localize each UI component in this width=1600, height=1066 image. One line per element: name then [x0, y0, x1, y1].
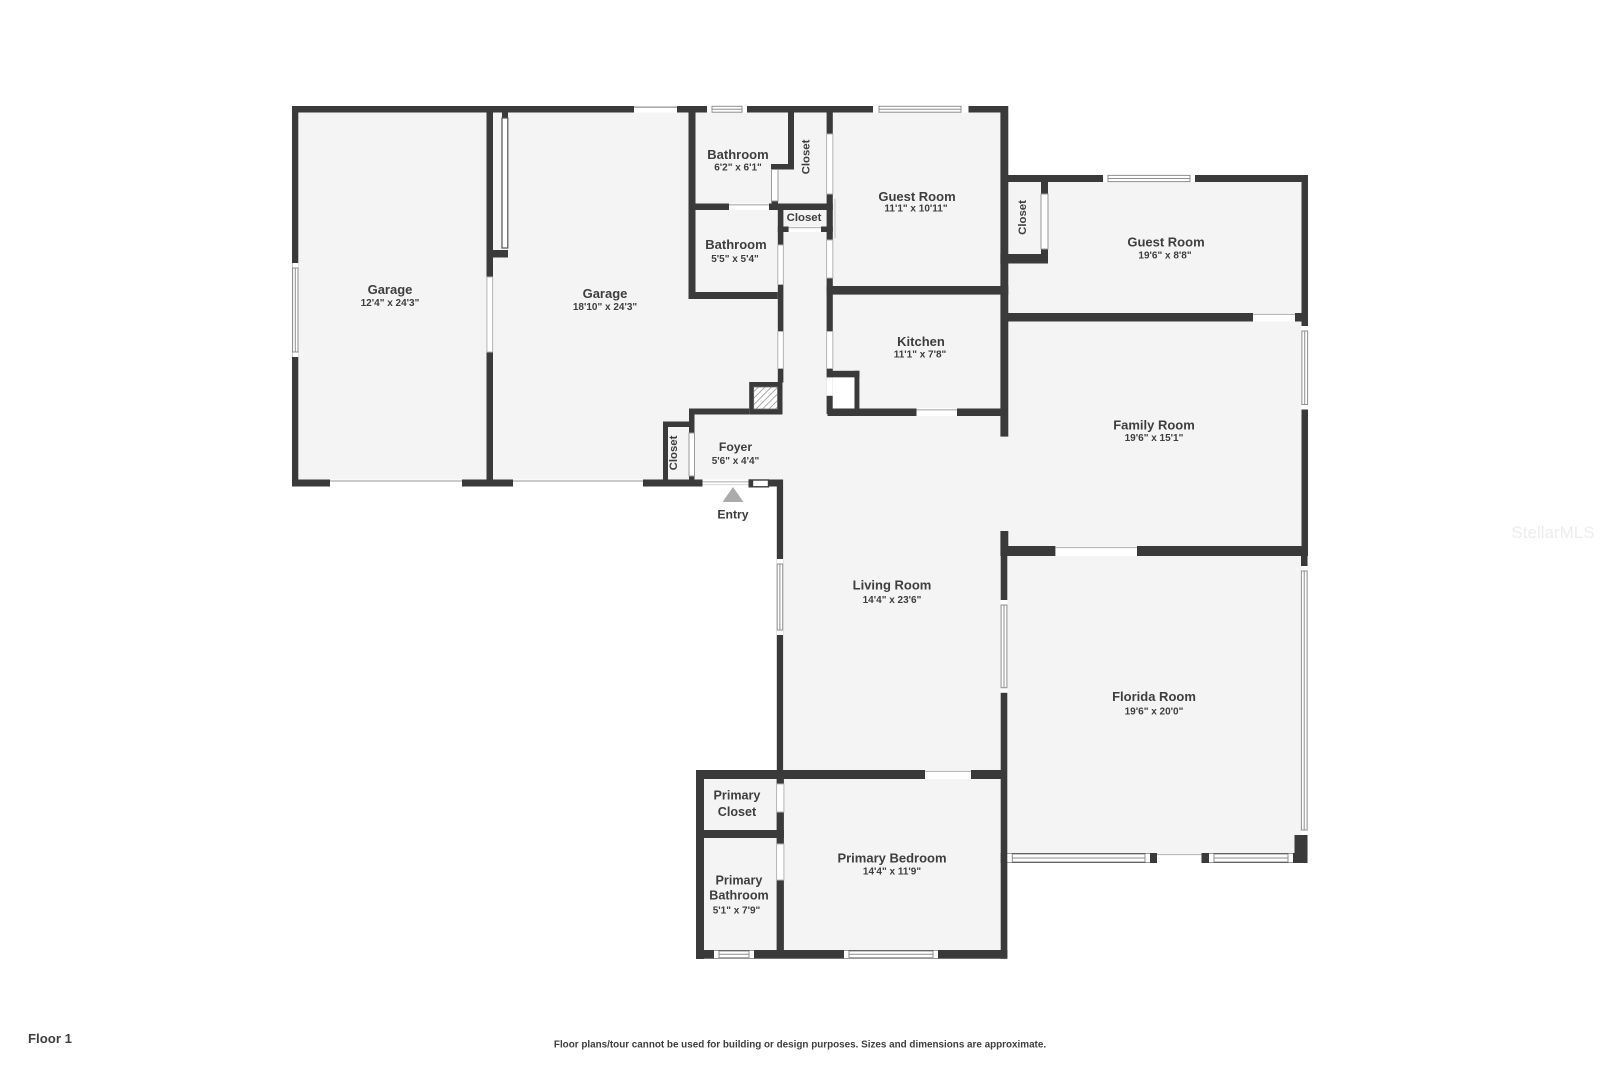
svg-text:6'2" x 6'1": 6'2" x 6'1": [714, 163, 762, 174]
svg-text:5'5" x 5'4": 5'5" x 5'4": [711, 254, 759, 265]
svg-text:12'4" x 24'3": 12'4" x 24'3": [361, 298, 420, 309]
svg-text:14'4" x 11'9": 14'4" x 11'9": [863, 867, 921, 878]
svg-text:Entry: Entry: [717, 508, 748, 522]
svg-text:StellarMLS: StellarMLS: [1511, 523, 1594, 542]
svg-text:Bathroom: Bathroom: [707, 147, 768, 162]
svg-text:11'1" x 7'8": 11'1" x 7'8": [894, 350, 947, 361]
svg-text:Primary Bedroom: Primary Bedroom: [837, 851, 946, 866]
svg-text:14'4" x 23'6": 14'4" x 23'6": [863, 595, 922, 606]
svg-text:Garage: Garage: [583, 286, 628, 301]
svg-text:Family Room: Family Room: [1113, 418, 1195, 433]
svg-text:Closet: Closet: [668, 435, 680, 470]
svg-text:Guest Room: Guest Room: [878, 189, 955, 204]
svg-text:Floor plans/tour cannot be use: Floor plans/tour cannot be used for buil…: [554, 1040, 1046, 1051]
svg-text:Closet: Closet: [787, 212, 822, 224]
svg-text:Foyer: Foyer: [719, 440, 752, 454]
svg-text:Garage: Garage: [368, 282, 413, 297]
svg-text:11'1" x 10'11": 11'1" x 10'11": [884, 204, 947, 215]
svg-text:Bathroom: Bathroom: [709, 889, 768, 903]
svg-text:19'6" x 20'0": 19'6" x 20'0": [1125, 707, 1184, 718]
svg-text:Kitchen: Kitchen: [897, 334, 945, 349]
svg-text:18'10" x 24'3": 18'10" x 24'3": [573, 302, 638, 313]
svg-text:19'6" x 8'8": 19'6" x 8'8": [1138, 251, 1191, 262]
svg-text:Closet: Closet: [801, 139, 813, 174]
svg-text:Guest Room: Guest Room: [1127, 235, 1204, 250]
svg-text:5'1" x 7'9": 5'1" x 7'9": [713, 906, 761, 917]
svg-text:Primary: Primary: [716, 874, 763, 888]
svg-text:5'6" x 4'4": 5'6" x 4'4": [712, 456, 760, 467]
svg-text:19'6" x 15'1": 19'6" x 15'1": [1125, 433, 1184, 444]
svg-text:Closet: Closet: [1017, 200, 1029, 235]
svg-text:Primary: Primary: [714, 789, 761, 803]
svg-text:Bathroom: Bathroom: [705, 237, 766, 252]
svg-text:Florida Room: Florida Room: [1112, 689, 1196, 704]
svg-text:Closet: Closet: [718, 805, 757, 819]
svg-text:Floor 1: Floor 1: [28, 1031, 72, 1046]
svg-text:Living Room: Living Room: [853, 578, 932, 593]
